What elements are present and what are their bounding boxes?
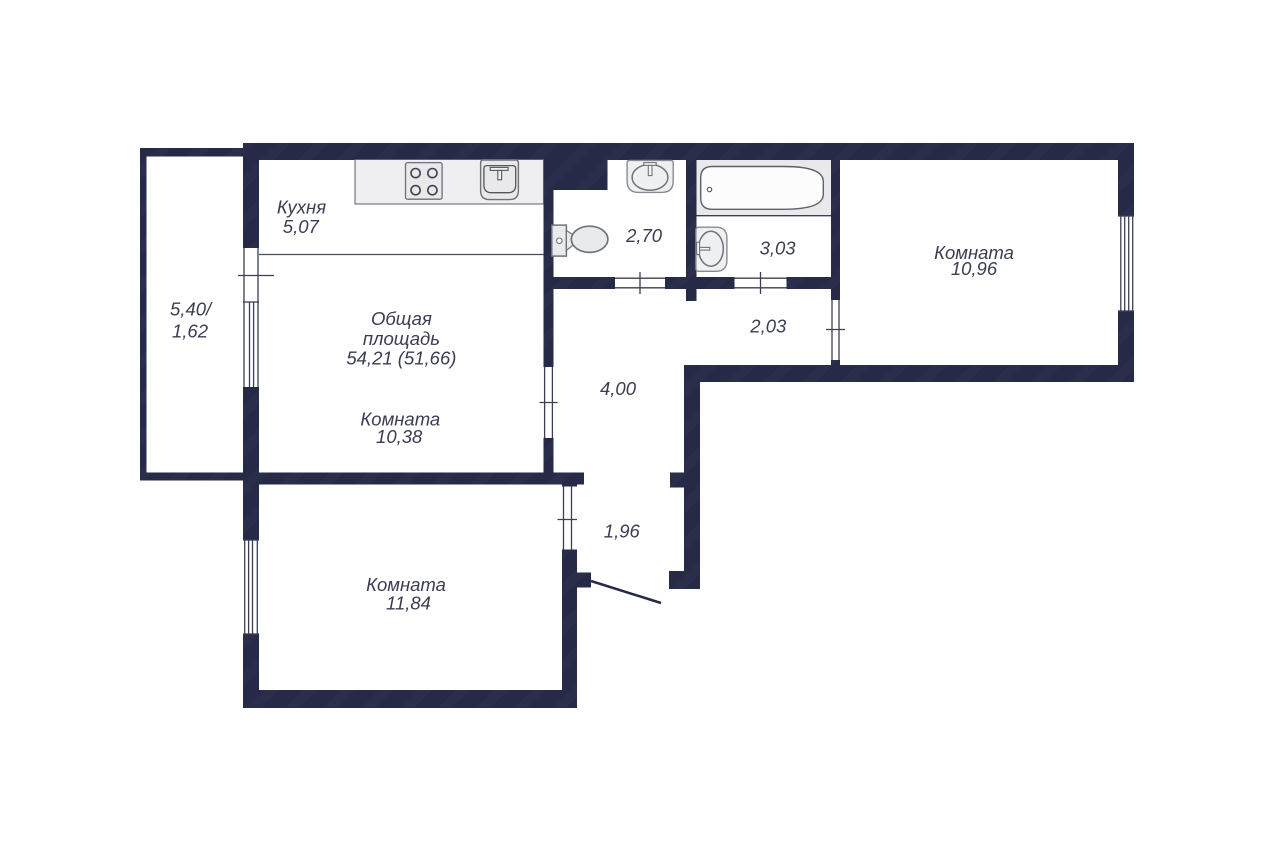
svg-text:Кухня: Кухня bbox=[277, 196, 326, 217]
svg-text:54,21 (51,66): 54,21 (51,66) bbox=[346, 347, 456, 368]
svg-text:площадь: площадь bbox=[363, 328, 440, 349]
svg-text:5,40/: 5,40/ bbox=[170, 299, 213, 320]
svg-text:4,00: 4,00 bbox=[600, 378, 637, 399]
svg-text:1,96: 1,96 bbox=[604, 521, 641, 542]
svg-text:10,38: 10,38 bbox=[376, 426, 423, 447]
svg-text:1,62: 1,62 bbox=[172, 321, 209, 342]
svg-text:5,07: 5,07 bbox=[283, 216, 320, 237]
svg-text:3,03: 3,03 bbox=[760, 238, 797, 259]
svg-text:10,96: 10,96 bbox=[951, 258, 998, 279]
svg-text:2,03: 2,03 bbox=[749, 316, 787, 337]
svg-text:11,84: 11,84 bbox=[386, 592, 431, 613]
svg-text:Общая: Общая bbox=[371, 308, 432, 329]
svg-text:2,70: 2,70 bbox=[625, 225, 663, 246]
